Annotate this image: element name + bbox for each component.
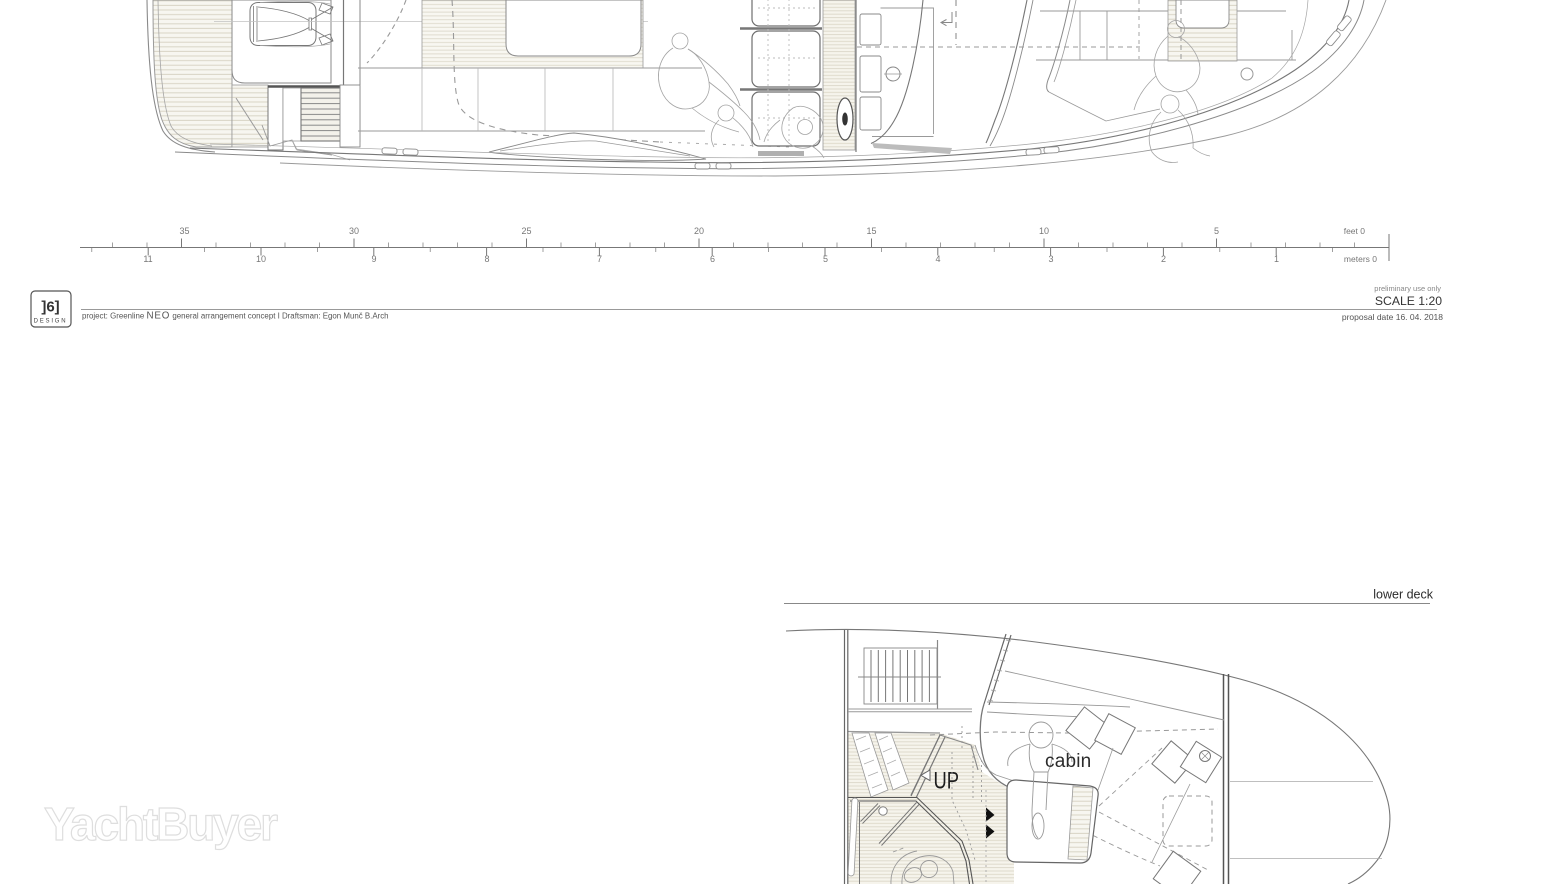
svg-text:6: 6 [710,254,715,264]
svg-text:8: 8 [484,254,489,264]
svg-text:5: 5 [823,254,828,264]
svg-text:meters 0: meters 0 [1344,254,1377,264]
svg-text:2: 2 [1161,254,1166,264]
svg-text:SCALE 1:20: SCALE 1:20 [1375,294,1442,308]
svg-text:5: 5 [1214,226,1219,236]
svg-text:9: 9 [371,254,376,264]
svg-text:3: 3 [1048,254,1053,264]
svg-text:10: 10 [256,254,266,264]
svg-text:feet 0: feet 0 [1344,226,1366,236]
svg-text:7: 7 [597,254,602,264]
svg-text:4: 4 [935,254,940,264]
svg-text:35: 35 [179,226,189,236]
svg-text:25: 25 [521,226,531,236]
svg-text:DESIGN: DESIGN [34,319,68,325]
svg-text:10: 10 [1039,226,1049,236]
svg-text:30: 30 [349,226,359,236]
svg-text:UP: UP [934,768,960,795]
svg-text:project: Greenline NEO general: project: Greenline NEO general arrangeme… [82,311,389,322]
svg-text:YachtBuyer: YachtBuyer [44,798,278,850]
svg-text:lower deck: lower deck [1373,588,1433,602]
svg-text:15: 15 [866,226,876,236]
svg-text:cabin: cabin [1045,751,1091,772]
svg-text:1: 1 [1274,254,1279,264]
svg-text:]6]: ]6] [41,299,59,316]
svg-text:11: 11 [143,254,152,264]
svg-text:20: 20 [694,226,704,236]
svg-text:proposal date 16. 04. 2018: proposal date 16. 04. 2018 [1342,312,1443,322]
svg-text:preliminary use only: preliminary use only [1374,284,1441,293]
